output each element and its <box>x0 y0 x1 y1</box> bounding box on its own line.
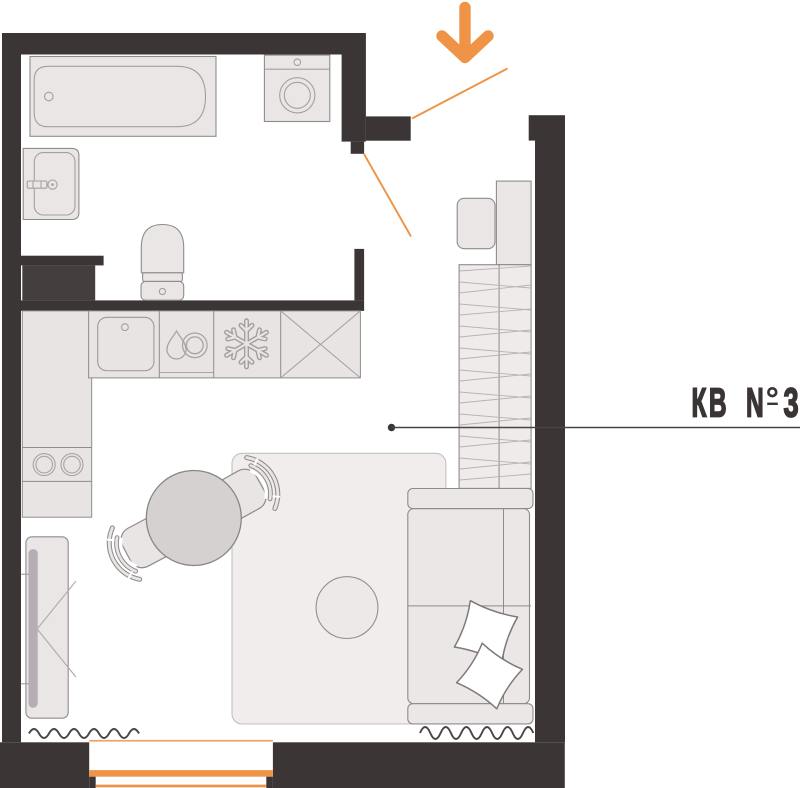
svg-text:N: N <box>746 380 764 426</box>
svg-text:КВ: КВ <box>692 380 729 426</box>
svg-text:3: 3 <box>784 380 799 426</box>
